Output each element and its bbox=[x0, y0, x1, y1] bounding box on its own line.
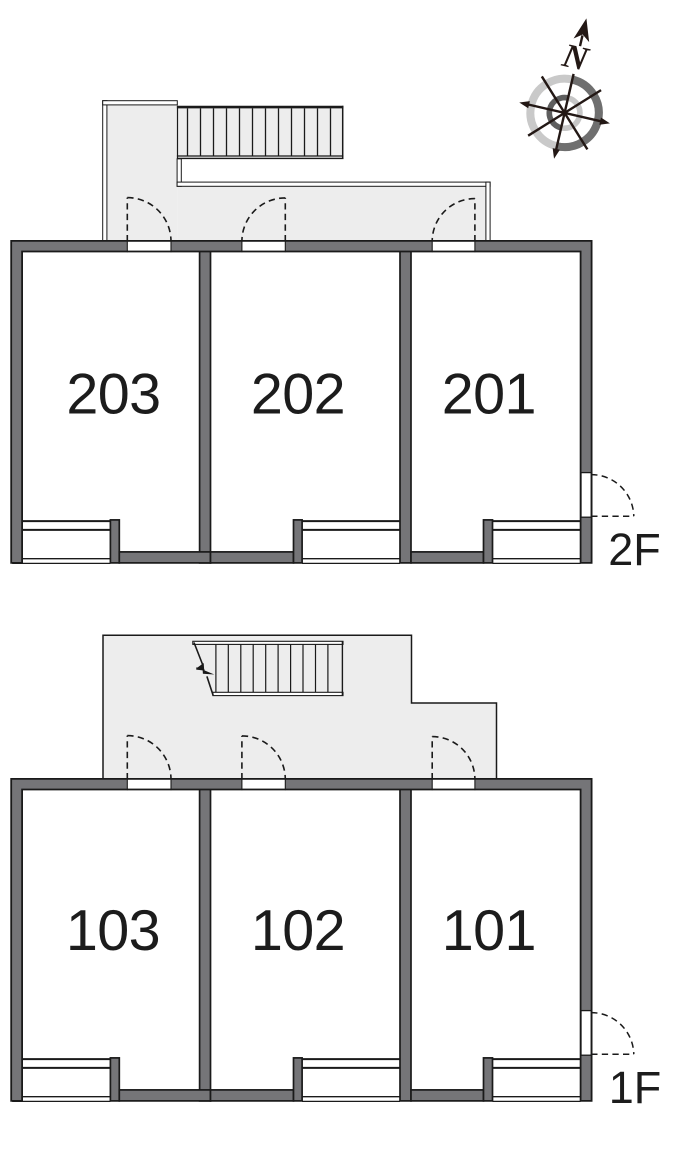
svg-text:101: 101 bbox=[442, 899, 536, 963]
svg-text:103: 103 bbox=[66, 899, 160, 963]
svg-text:201: 201 bbox=[442, 362, 536, 426]
svg-text:2F: 2F bbox=[608, 524, 661, 575]
svg-text:203: 203 bbox=[66, 362, 160, 426]
svg-text:1F: 1F bbox=[609, 1062, 662, 1113]
svg-text:102: 102 bbox=[251, 899, 345, 963]
svg-text:202: 202 bbox=[251, 362, 345, 426]
